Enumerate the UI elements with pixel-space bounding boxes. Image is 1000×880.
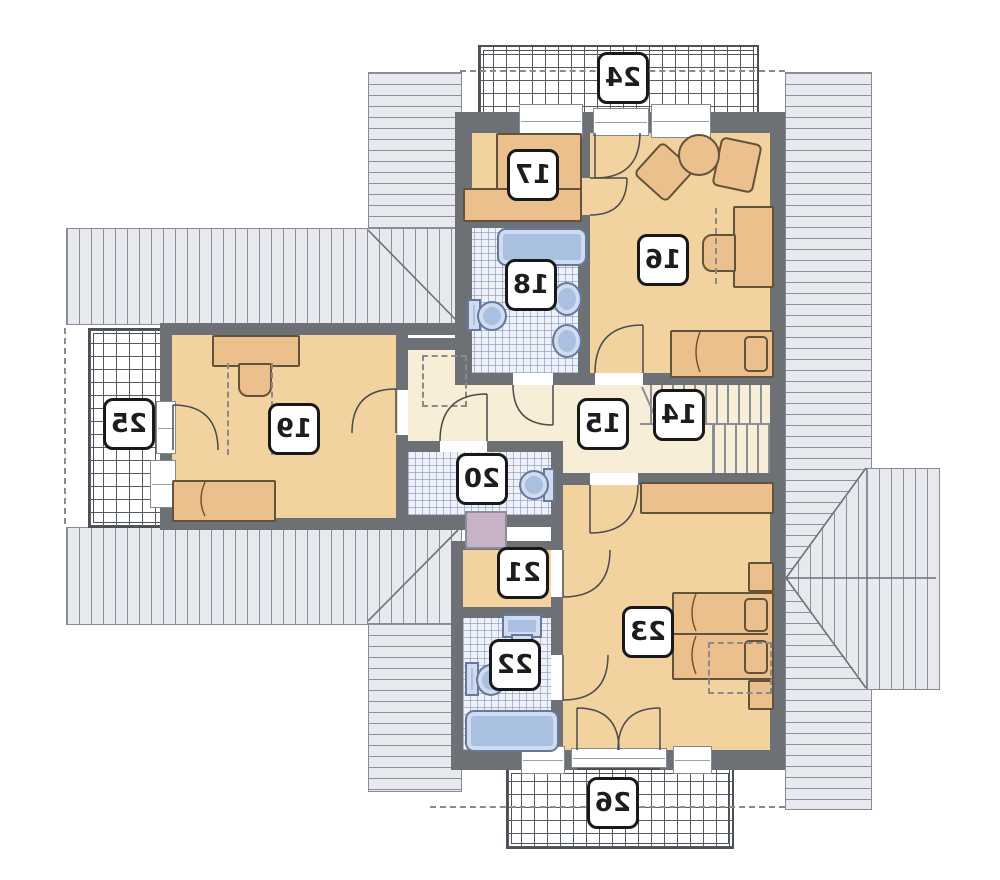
window-room16: [651, 104, 711, 138]
wall-20-bottom-1: [408, 515, 467, 527]
stairs-lower-treads: [713, 425, 770, 473]
nightstand-top: [748, 562, 774, 592]
balcony-label-26: 26: [587, 777, 639, 829]
floor-plan-canvas: 14 15 16 17 18 19 20 21 22 23 24 25 26: [0, 0, 1000, 880]
utility-box: [465, 511, 507, 549]
bathtub-room22: [465, 710, 559, 752]
desk-room16: [733, 206, 774, 288]
balcony-door-threshold-top: [593, 108, 649, 136]
room-label-20: 20: [456, 453, 508, 505]
headroom-outline-23: [708, 642, 772, 694]
room-label-16: 16: [637, 234, 689, 286]
balcony-label-24: 24: [597, 52, 649, 104]
wardrobe-outline-vestibule: [422, 355, 467, 407]
room-label-22: 22: [489, 639, 541, 691]
chair-room16: [702, 234, 736, 272]
wall-21-23-stub: [551, 597, 563, 607]
wall-leftwing-top: [160, 323, 465, 335]
round-table: [678, 134, 720, 176]
chair-room19: [238, 363, 272, 397]
wall-leftwing-left-1: [160, 323, 172, 403]
toilet-bowl-room20: [519, 470, 549, 500]
roof-left-wing-lower: [66, 527, 462, 625]
wall-23-top-1: [563, 473, 590, 485]
wall-22-23-upper: [551, 607, 563, 655]
stairs-flight-divider: [712, 425, 714, 473]
wall-hall-20-1: [408, 441, 440, 452]
double-bed-split-line: [674, 633, 768, 635]
wall-bottomwing-left: [451, 543, 463, 770]
room-label-21: 21: [497, 547, 549, 599]
pillow-room16: [744, 336, 768, 372]
bed-room19: [172, 480, 276, 522]
roof-upper-left-strip: [368, 72, 462, 232]
eave-dash-left: [64, 328, 66, 524]
room-label-19: 19: [268, 403, 320, 455]
balcony-label-25: 25: [103, 398, 155, 450]
wall-bottom-4: [708, 750, 785, 770]
window-room23: [673, 746, 712, 774]
wall-vestibule-top: [396, 338, 465, 350]
toilet-bowl-room18: [477, 301, 507, 331]
wall-19-vestibule-2: [396, 435, 408, 523]
balcony-door-threshold-left: [156, 401, 176, 454]
wall-topsec-bottom-2: [553, 373, 595, 385]
room-label-17: 17: [507, 149, 559, 201]
room-label-18: 18: [505, 259, 557, 311]
wall-bottom-1: [451, 750, 527, 770]
room-label-15: 15: [577, 398, 629, 450]
wardrobe-room23: [640, 482, 774, 514]
pillow-23-a: [744, 598, 768, 632]
wall-20-bottom-2: [503, 515, 563, 527]
room-label-23: 23: [622, 606, 674, 658]
room-label-14: 14: [653, 389, 705, 441]
french-door-threshold: [571, 748, 667, 768]
roof-left-wing-upper: [66, 228, 462, 325]
roof-right-strip: [785, 72, 872, 810]
headroom-dash-16: [715, 208, 717, 284]
headroom-dash-19a: [227, 363, 229, 455]
roof-lower-left-strip: [368, 623, 462, 792]
sink-room18-b: [552, 324, 582, 358]
dormer-roof-front: [866, 468, 940, 690]
